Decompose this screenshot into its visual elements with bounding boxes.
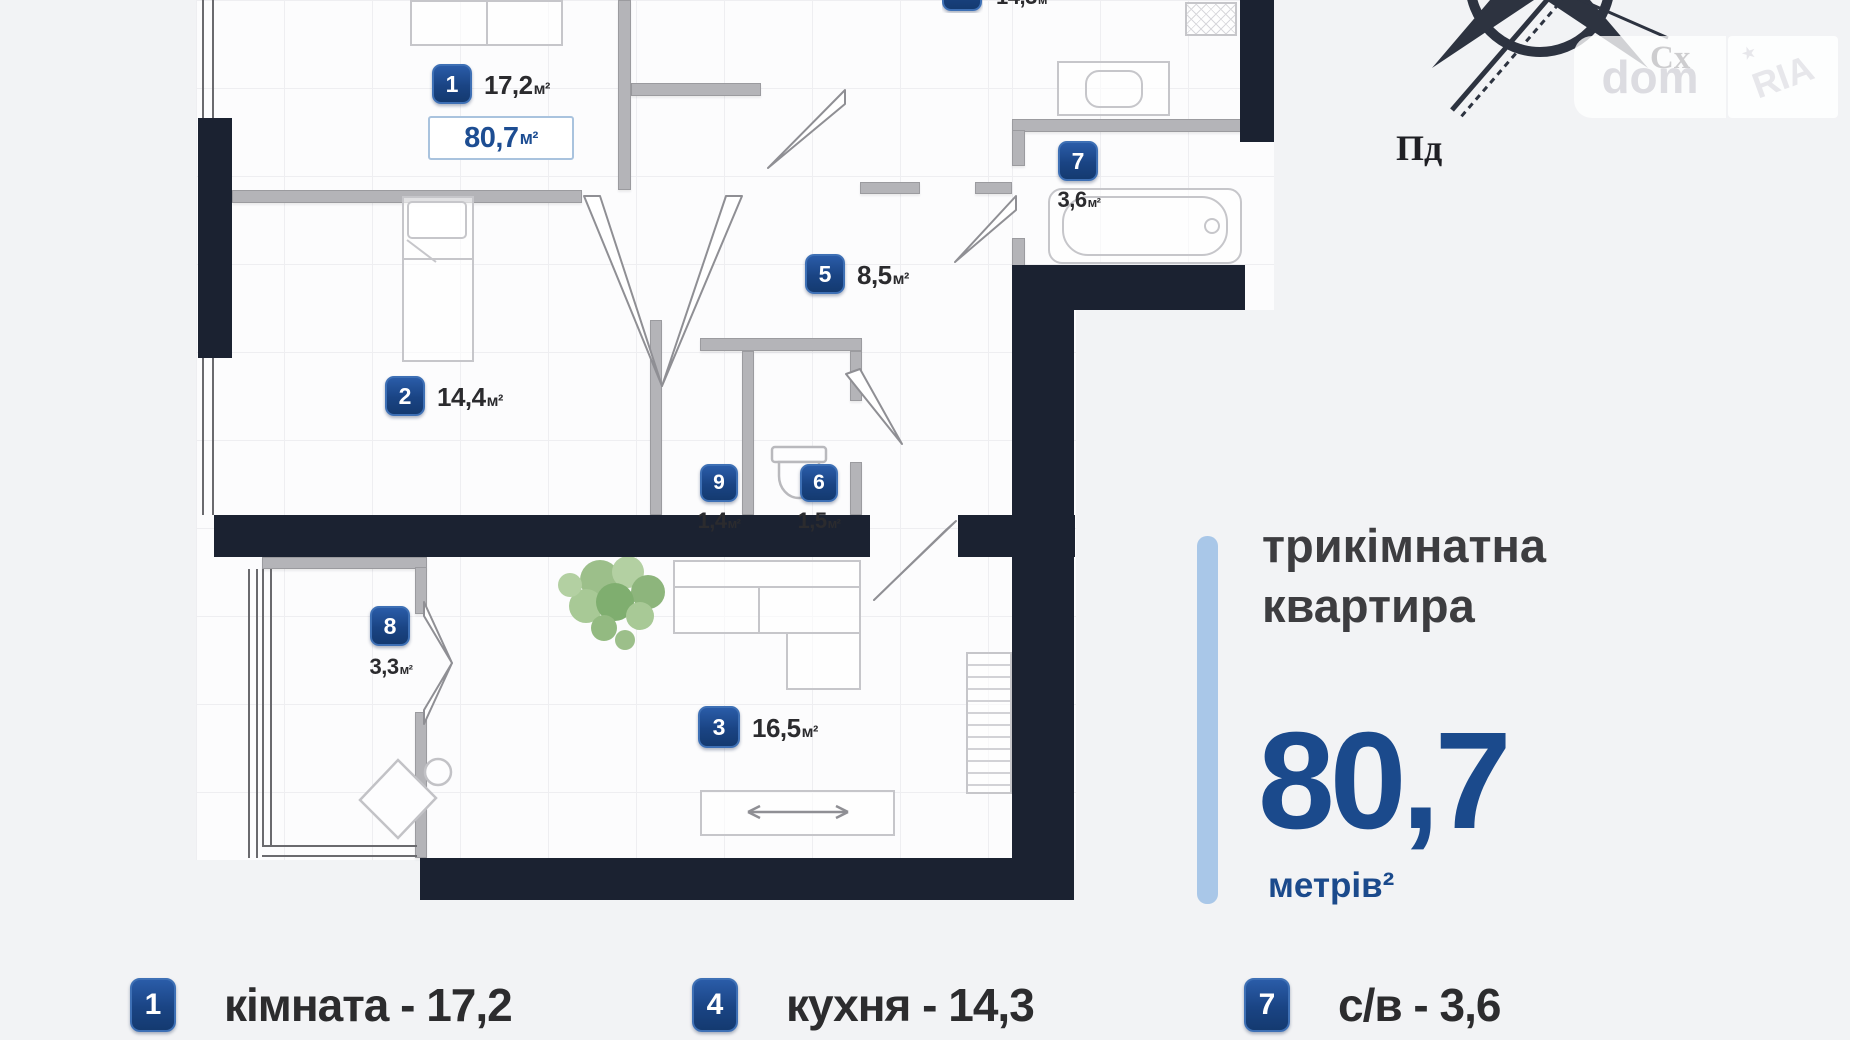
- room-9-area: 1,4м²: [676, 508, 762, 534]
- info-area-number: 80,7: [1258, 712, 1507, 850]
- legend-badge-4: 4: [692, 978, 738, 1032]
- room-9-badge: 9: [700, 464, 738, 502]
- wall-bathroom-bottom: [1012, 265, 1245, 310]
- wall-mid-horizontal: [214, 515, 870, 557]
- legend-label-bathroom: с/в - 3,6: [1338, 978, 1500, 1032]
- room-2-area: 14,4м²: [437, 382, 503, 413]
- room-3-area: 16,5м²: [752, 713, 818, 744]
- wall-bottom: [420, 858, 1074, 900]
- room-8-area: 3,3м²: [348, 654, 434, 680]
- bed-fold-line: [407, 240, 436, 262]
- door-wc: [846, 369, 902, 444]
- wall-right-vertical: [1012, 310, 1074, 900]
- legend-badge-7: 7: [1244, 978, 1290, 1032]
- legend-badge-1: 1: [130, 978, 176, 1032]
- wall-left-main: [198, 118, 232, 358]
- watermark-ria: ★ RIA: [1728, 36, 1838, 118]
- door-bathroom: [955, 196, 1016, 262]
- room-4-badge-clipped: 4: [942, 0, 983, 13]
- legend-item-kitchen: 4 кухня - 14,3: [692, 978, 1034, 1032]
- room-6-area: 1,5м²: [776, 508, 862, 534]
- door-room2-right-leaf: [662, 196, 742, 386]
- room-7-badge: 7: [1058, 141, 1098, 181]
- compass-south-label: Пд: [1396, 128, 1442, 168]
- watermark-dom: dom: [1574, 36, 1726, 118]
- dresser-arrows-icon: [748, 806, 848, 818]
- info-accent-bar: [1197, 536, 1218, 904]
- legend-label-kitchen: кухня - 14,3: [786, 978, 1034, 1032]
- floorplan-page: { "page": { "background": "#f2f3f5" }, "…: [0, 0, 1850, 1040]
- balcony-chair-icon: [360, 759, 451, 838]
- room-7-area: 3,6м²: [1036, 187, 1122, 213]
- plant-icon: [558, 556, 665, 650]
- room-1-badge: 1: [432, 64, 472, 104]
- legend-item-room: 1 кімната - 17,2: [130, 978, 512, 1032]
- door-kitchen: [768, 90, 845, 168]
- room-1-area: 17,2м²: [484, 70, 550, 101]
- room-2-badge: 2: [385, 376, 425, 416]
- total-area-box: 80,7м²: [428, 116, 574, 160]
- door-room3: [874, 521, 956, 600]
- room-6-badge: 6: [800, 464, 838, 502]
- room-3-badge: 3: [698, 706, 740, 748]
- info-area-unit: метрів²: [1268, 866, 1394, 906]
- watermark-star-icon: ★: [1739, 42, 1758, 64]
- room-5-badge: 5: [805, 254, 845, 294]
- room-5-area: 8,5м²: [857, 260, 909, 291]
- room-8-badge: 8: [370, 606, 410, 646]
- info-title: трикімнатна квартира: [1262, 516, 1546, 635]
- room-4-area-clipped: 14,3м²: [996, 0, 1088, 9]
- info-title-line1: трикімнатна: [1262, 516, 1546, 576]
- wall-top-right: [1240, 0, 1274, 142]
- legend-label-room: кімната - 17,2: [224, 978, 512, 1032]
- info-title-line2: квартира: [1262, 576, 1546, 636]
- legend-item-bathroom: 7 с/в - 3,6: [1244, 978, 1500, 1032]
- door-room2-left-leaf: [584, 196, 662, 386]
